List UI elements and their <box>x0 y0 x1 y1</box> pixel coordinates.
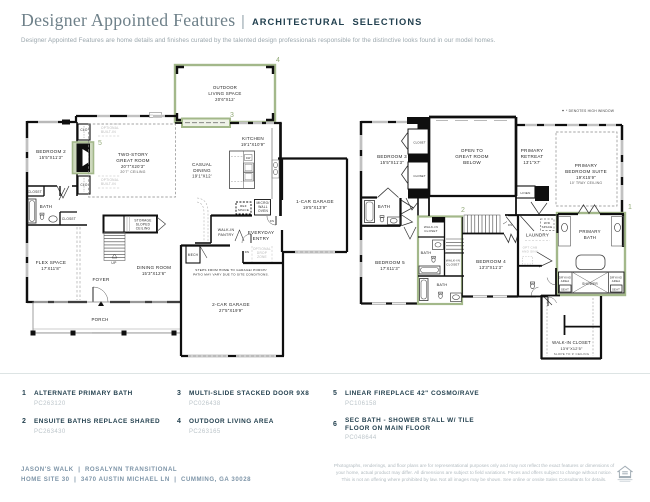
svg-text:BATH: BATH <box>584 235 596 240</box>
svg-text:3: 3 <box>230 112 234 119</box>
svg-text:GREAT ROOM: GREAT ROOM <box>116 158 149 163</box>
svg-text:WALK-IN: WALK-IN <box>218 228 235 232</box>
svg-text:DN: DN <box>245 250 250 254</box>
svg-text:BEDROOM SUITE: BEDROOM SUITE <box>565 169 607 174</box>
svg-text:DW: DW <box>246 157 251 160</box>
svg-text:LINEN: LINEN <box>520 191 530 195</box>
svg-text:RETREAT: RETREAT <box>521 154 544 159</box>
svg-text:OVEN: OVEN <box>258 209 268 213</box>
svg-text:BATH: BATH <box>421 251 432 255</box>
svg-text:BUILT-IN: BUILT-IN <box>101 130 116 134</box>
svg-text:1: 1 <box>628 204 632 211</box>
svg-text:4: 4 <box>276 57 280 64</box>
svg-text:DINING ROOM: DINING ROOM <box>137 265 171 270</box>
svg-text:LIVING SPACE: LIVING SPACE <box>208 91 241 96</box>
svg-text:* DENOTES HIGH WINDOW: * DENOTES HIGH WINDOW <box>566 109 615 113</box>
svg-text:BATH: BATH <box>378 204 390 209</box>
svg-text:PORCH: PORCH <box>91 317 108 322</box>
svg-text:ZONE: ZONE <box>257 255 267 259</box>
svg-text:EVERYDAY: EVERYDAY <box>248 230 275 235</box>
svg-text:20'7" CEILING: 20'7" CEILING <box>120 170 145 174</box>
svg-text:CEILING: CEILING <box>136 227 151 231</box>
svg-text:20'6"X12': 20'6"X12' <box>215 97 235 102</box>
svg-text:27'5"X19'9": 27'5"X19'9" <box>219 308 243 313</box>
svg-text:DN: DN <box>270 219 275 223</box>
svg-text:2: 2 <box>461 207 465 214</box>
svg-text:15'5"X11'3": 15'5"X11'3" <box>380 160 404 165</box>
svg-text:17'X11'8": 17'X11'8" <box>41 266 61 271</box>
svg-text:CLOSET: CLOSET <box>446 263 460 267</box>
svg-text:FOYER: FOYER <box>92 277 110 282</box>
svg-text:SEAT: SEAT <box>561 287 569 291</box>
svg-text:CLOSET: CLOSET <box>28 190 42 194</box>
svg-text:BEDROOM 4: BEDROOM 4 <box>476 259 506 264</box>
svg-text:KITCHEN: KITCHEN <box>242 136 264 141</box>
svg-text:SPACE: SPACE <box>238 208 249 212</box>
svg-text:CLOSET: CLOSET <box>413 141 425 145</box>
svg-text:CASUAL: CASUAL <box>192 162 212 167</box>
svg-text:BATH: BATH <box>437 283 448 287</box>
svg-text:BATH: BATH <box>40 204 52 209</box>
svg-text:15'5"X11'3": 15'5"X11'3" <box>39 155 63 160</box>
svg-text:10' TRAY CEILING: 10' TRAY CEILING <box>570 181 603 185</box>
svg-text:PANTRY: PANTRY <box>218 233 234 237</box>
svg-text:BELOW: BELOW <box>463 160 481 165</box>
svg-text:SPACE: SPACE <box>542 225 553 229</box>
svg-text:DINING: DINING <box>193 168 211 173</box>
svg-text:13'3"X11'3": 13'3"X11'3" <box>479 265 503 270</box>
svg-text:OUTDOOR: OUTDOOR <box>213 85 237 90</box>
svg-text:19'5"X13'9": 19'5"X13'9" <box>303 205 327 210</box>
svg-text:CLOSET: CLOSET <box>413 174 425 178</box>
svg-text:WALK-IN CLOSET: WALK-IN CLOSET <box>552 340 591 345</box>
svg-text:PRIMARY: PRIMARY <box>521 148 544 153</box>
svg-text:19'1"X12': 19'1"X12' <box>192 174 212 179</box>
svg-text:AREA: AREA <box>561 279 570 283</box>
svg-text:SEAT: SEAT <box>612 287 620 291</box>
svg-text:MECH: MECH <box>188 253 199 257</box>
svg-text:FLEX SPACE: FLEX SPACE <box>36 260 67 265</box>
svg-text:LAUNDRY: LAUNDRY <box>526 233 549 238</box>
svg-text:BEDROOM 2: BEDROOM 2 <box>36 149 66 154</box>
svg-text:19'X15'9": 19'X15'9" <box>576 175 596 180</box>
svg-text:13'1"X7': 13'1"X7' <box>523 160 540 165</box>
svg-text:PATIO MAY VARY DUE TO SITE CON: PATIO MAY VARY DUE TO SITE CONDITIONS. <box>193 273 269 277</box>
svg-text:AREA: AREA <box>612 279 621 283</box>
svg-text:UP: UP <box>111 261 117 265</box>
svg-text:5: 5 <box>98 140 102 147</box>
svg-text:AND SINK: AND SINK <box>522 250 538 254</box>
svg-text:2-CAR GARAGE: 2-CAR GARAGE <box>212 302 250 307</box>
svg-text:15'3"X12'6": 15'3"X12'6" <box>142 271 166 276</box>
svg-text:CLOSET: CLOSET <box>424 229 438 233</box>
svg-text:PRIMARY: PRIMARY <box>579 229 601 234</box>
svg-text:ENTRY: ENTRY <box>253 236 270 241</box>
svg-text:1-CAR GARAGE: 1-CAR GARAGE <box>296 199 334 204</box>
svg-text:CLOSET: CLOSET <box>62 217 76 221</box>
svg-text:19'1"X10'9": 19'1"X10'9" <box>241 142 265 147</box>
svg-text:BEDROOM 3: BEDROOM 3 <box>377 154 407 159</box>
svg-text:PRIMARY: PRIMARY <box>575 163 598 168</box>
svg-text:17'X11'3": 17'X11'3" <box>380 266 400 271</box>
svg-text:20'7"X20'3": 20'7"X20'3" <box>121 164 145 169</box>
svg-text:TWO-STORY: TWO-STORY <box>118 152 148 157</box>
svg-text:BEDROOM 5: BEDROOM 5 <box>375 260 405 265</box>
svg-text:13'9"X12'5": 13'9"X12'5" <box>560 347 583 351</box>
svg-text:STEPS FROM HOME TO GARAGE/ POR: STEPS FROM HOME TO GARAGE/ PORCH/ <box>195 268 266 272</box>
svg-text:SLOPE TO 9' CEILING: SLOPE TO 9' CEILING <box>554 352 590 356</box>
svg-text:OPEN TO: OPEN TO <box>461 148 483 153</box>
svg-text:BUILT-IN: BUILT-IN <box>101 182 116 186</box>
svg-text:GREAT ROOM: GREAT ROOM <box>455 154 488 159</box>
svg-text:SHOWER: SHOWER <box>582 282 598 286</box>
